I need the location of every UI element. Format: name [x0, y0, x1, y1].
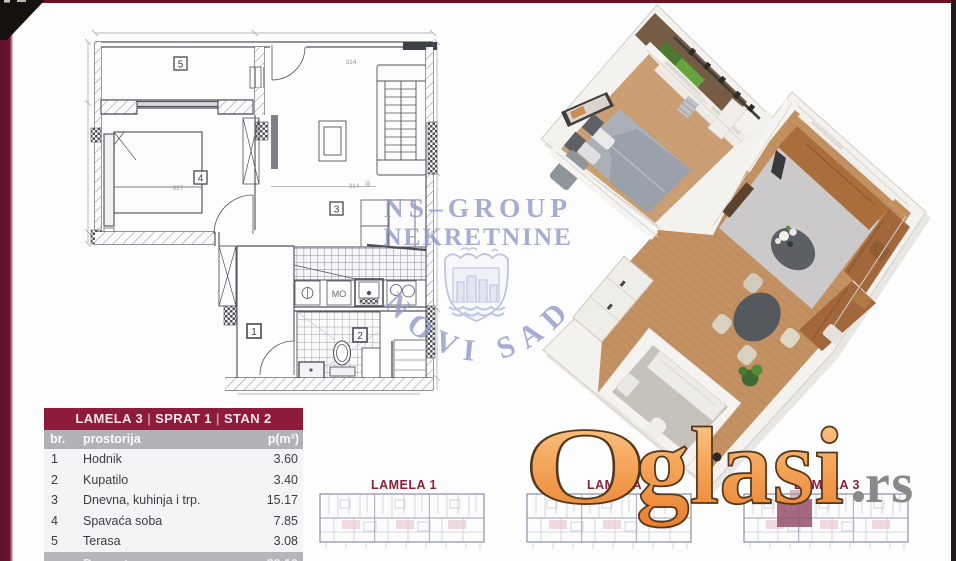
svg-text:rs: rs [865, 453, 915, 515]
svg-text:327: 327 [173, 185, 184, 192]
svg-text:O: O [523, 410, 647, 527]
svg-text:2: 2 [357, 331, 363, 342]
svg-text:4: 4 [198, 174, 204, 185]
svg-text:MO: MO [332, 289, 347, 299]
svg-text:1: 1 [251, 327, 257, 338]
svg-text:LAMELA 1: LAMELA 1 [371, 478, 437, 492]
svg-text:3: 3 [334, 205, 340, 216]
svg-text:NS–GROUP: NS–GROUP [384, 192, 572, 223]
svg-text:5: 5 [178, 60, 184, 71]
svg-text:314: 314 [346, 59, 357, 66]
svg-text:NEKRETNINE: NEKRETNINE [383, 222, 572, 251]
svg-text:glasi: glasi [636, 410, 844, 527]
